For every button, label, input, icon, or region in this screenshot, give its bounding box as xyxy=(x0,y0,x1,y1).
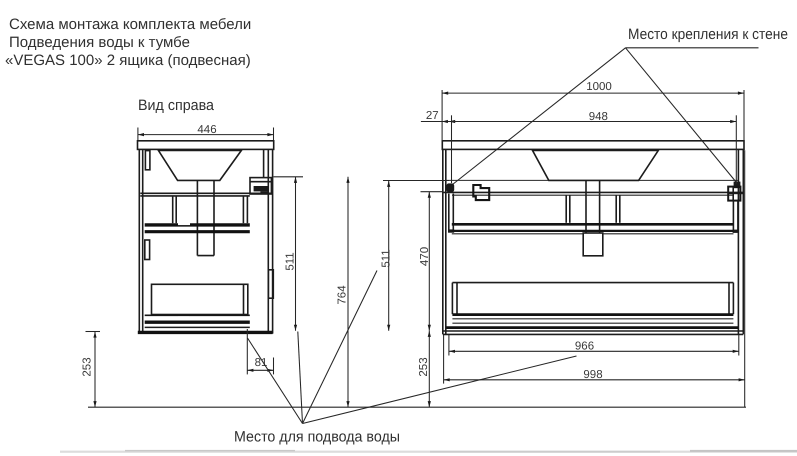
svg-text:764: 764 xyxy=(336,285,348,305)
svg-text:«VEGAS 100» 2 ящика (подвесная: «VEGAS 100» 2 ящика (подвесная) xyxy=(5,52,251,69)
svg-text:966: 966 xyxy=(575,340,594,352)
svg-text:511: 511 xyxy=(380,249,392,267)
svg-text:948: 948 xyxy=(589,111,608,123)
svg-text:27: 27 xyxy=(426,110,439,122)
svg-text:1000: 1000 xyxy=(586,81,612,93)
svg-text:Место крепления к стене: Место крепления к стене xyxy=(628,26,788,43)
svg-text:Место для подвода воды: Место для подвода воды xyxy=(234,429,400,446)
svg-text:253: 253 xyxy=(82,357,94,376)
svg-text:253: 253 xyxy=(418,357,430,376)
svg-text:Подведения воды к тумбе: Подведения воды к тумбе xyxy=(9,34,190,51)
svg-text:Вид справа: Вид справа xyxy=(138,97,215,114)
svg-text:Схема монтажа комплекта мебели: Схема монтажа комплекта мебели xyxy=(9,16,251,33)
svg-text:446: 446 xyxy=(197,124,216,136)
svg-text:998: 998 xyxy=(583,369,602,381)
svg-text:470: 470 xyxy=(419,247,431,266)
svg-text:511: 511 xyxy=(284,252,296,270)
